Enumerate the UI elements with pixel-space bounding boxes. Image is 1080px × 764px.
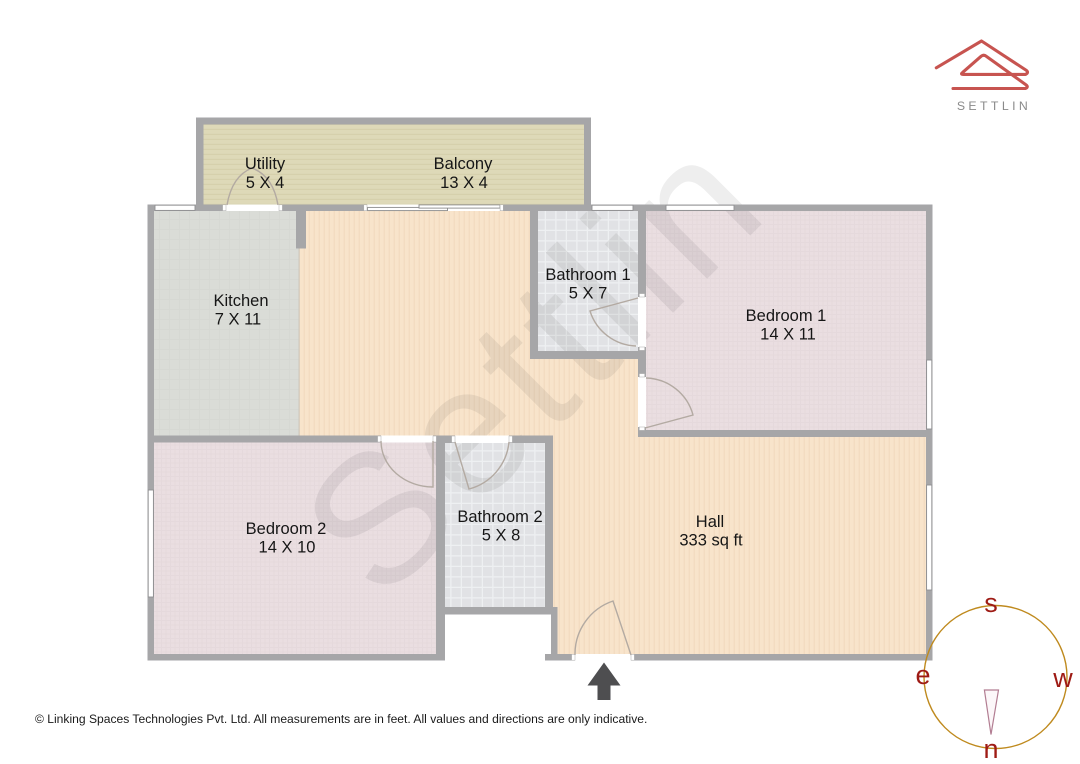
svg-text:Bedroom 2: Bedroom 2 xyxy=(246,520,327,538)
svg-text:5 X 7: 5 X 7 xyxy=(569,285,608,303)
svg-text:Hall: Hall xyxy=(696,513,724,531)
svg-text:333 sq ft: 333 sq ft xyxy=(679,532,743,550)
svg-text:13 X 4: 13 X 4 xyxy=(440,174,488,192)
svg-text:5 X 4: 5 X 4 xyxy=(246,174,285,192)
svg-text:Balcony: Balcony xyxy=(434,155,493,173)
svg-text:n: n xyxy=(983,734,998,764)
svg-text:s: s xyxy=(984,588,998,618)
svg-text:Bathroom 2: Bathroom 2 xyxy=(457,508,542,526)
svg-text:SETTLIN: SETTLIN xyxy=(957,99,1031,113)
svg-text:e: e xyxy=(915,660,930,690)
svg-text:5 X 8: 5 X 8 xyxy=(482,527,521,545)
svg-text:14 X 10: 14 X 10 xyxy=(259,539,316,557)
svg-text:Bathroom 1: Bathroom 1 xyxy=(545,266,630,284)
svg-text:7 X 11: 7 X 11 xyxy=(215,311,261,329)
svg-text:Kitchen: Kitchen xyxy=(213,292,268,310)
svg-text:Bedroom 1: Bedroom 1 xyxy=(746,307,827,325)
svg-text:14 X 11: 14 X 11 xyxy=(760,326,816,344)
svg-text:Utility: Utility xyxy=(245,155,286,173)
svg-text:© Linking Spaces Technologies: © Linking Spaces Technologies Pvt. Ltd. … xyxy=(35,712,647,726)
svg-text:w: w xyxy=(1052,663,1073,693)
